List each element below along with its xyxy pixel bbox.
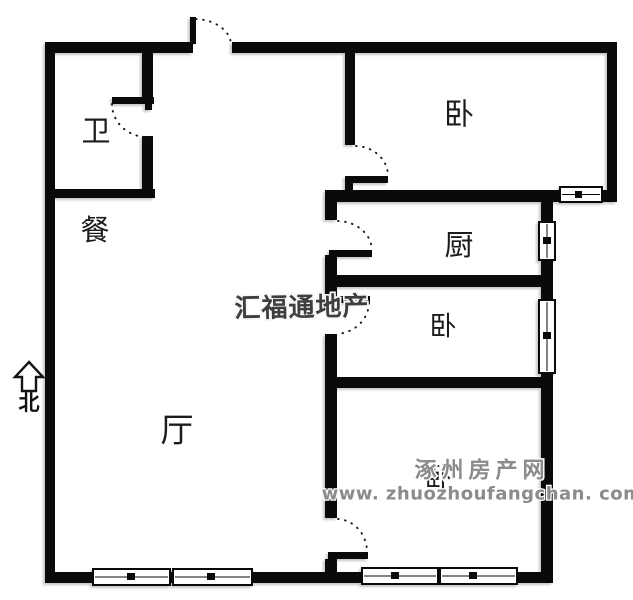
room-label-bathroom: 卫 — [81, 114, 110, 148]
window-living-1 — [93, 569, 170, 585]
window-bedroom-middle — [539, 300, 555, 373]
watermark-brand-center: 汇福通地产 — [234, 292, 370, 324]
entry-door-panel — [190, 17, 196, 44]
bedroom-top-door-hinge — [345, 176, 353, 202]
window-tick — [391, 572, 399, 579]
wall-outer-top-left — [45, 42, 193, 53]
room-label-kitchen: 厨 — [444, 228, 473, 262]
wall-outer-top-right — [232, 42, 617, 53]
floor-plan-svg: 北 卫 餐 厅 卧 厨 卧 卧 汇福通地产 涿州房产网 www. zhuozho… — [0, 0, 633, 600]
north-arrow-icon — [15, 362, 43, 391]
wall-outer-right-upper — [607, 42, 617, 202]
watermark-site-url: www. zhuozhoufangchan. com — [322, 484, 633, 505]
window-tick — [127, 573, 135, 580]
wall-outer-left — [45, 42, 55, 583]
kitchen-door-panel — [329, 250, 372, 257]
wall-bedroom-middle-bottom — [325, 377, 553, 388]
bathroom-door-panel — [112, 97, 154, 104]
wall-bathroom-right-upper — [142, 53, 153, 103]
bedroom-bottom-door-panel — [328, 552, 368, 559]
room-label-dining: 餐 — [80, 213, 109, 247]
wall-right-mid-seg-2 — [541, 260, 553, 300]
wall-right-mid-seg-1 — [541, 202, 553, 222]
wall-center-seg-1 — [325, 202, 337, 220]
window-living-2 — [173, 569, 252, 585]
window-tick — [575, 191, 582, 198]
entry-door-arc — [196, 19, 231, 45]
north-label: 北 — [19, 391, 40, 415]
wall-kitchen-bottom — [325, 275, 553, 287]
window-bedroom-bottom-1 — [362, 568, 438, 584]
window-tick — [469, 572, 477, 579]
bathroom-door-arc — [112, 104, 146, 137]
bedroom-top-door-panel — [348, 176, 388, 183]
room-label-bedroom-middle: 卧 — [430, 312, 457, 343]
wall-bathroom-bottom — [48, 189, 155, 198]
kitchen-door-arc — [338, 221, 372, 249]
window-tick — [543, 332, 551, 339]
floor-plan-image: 北 卫 餐 厅 卧 厨 卧 卧 汇福通地产 涿州房产网 www. zhuozho… — [0, 0, 633, 600]
bathroom-door-hinge — [145, 103, 152, 110]
window-tick — [207, 573, 215, 580]
bedroom-top-door-arc — [356, 146, 388, 175]
window-tick — [543, 237, 551, 244]
room-label-bedroom-top: 卧 — [444, 98, 474, 133]
wall-bedroom-top-left — [345, 53, 355, 145]
room-label-living: 厅 — [161, 411, 194, 450]
window-bedroom-top — [560, 187, 602, 202]
wall-center-seg-4 — [325, 559, 337, 583]
wall-bathroom-right-lower — [142, 136, 153, 197]
window-kitchen — [539, 222, 555, 260]
window-bedroom-bottom-2 — [440, 568, 517, 584]
bedroom-bottom-door-arc — [338, 519, 367, 551]
watermark-site-name: 涿州房产网 — [414, 458, 549, 484]
